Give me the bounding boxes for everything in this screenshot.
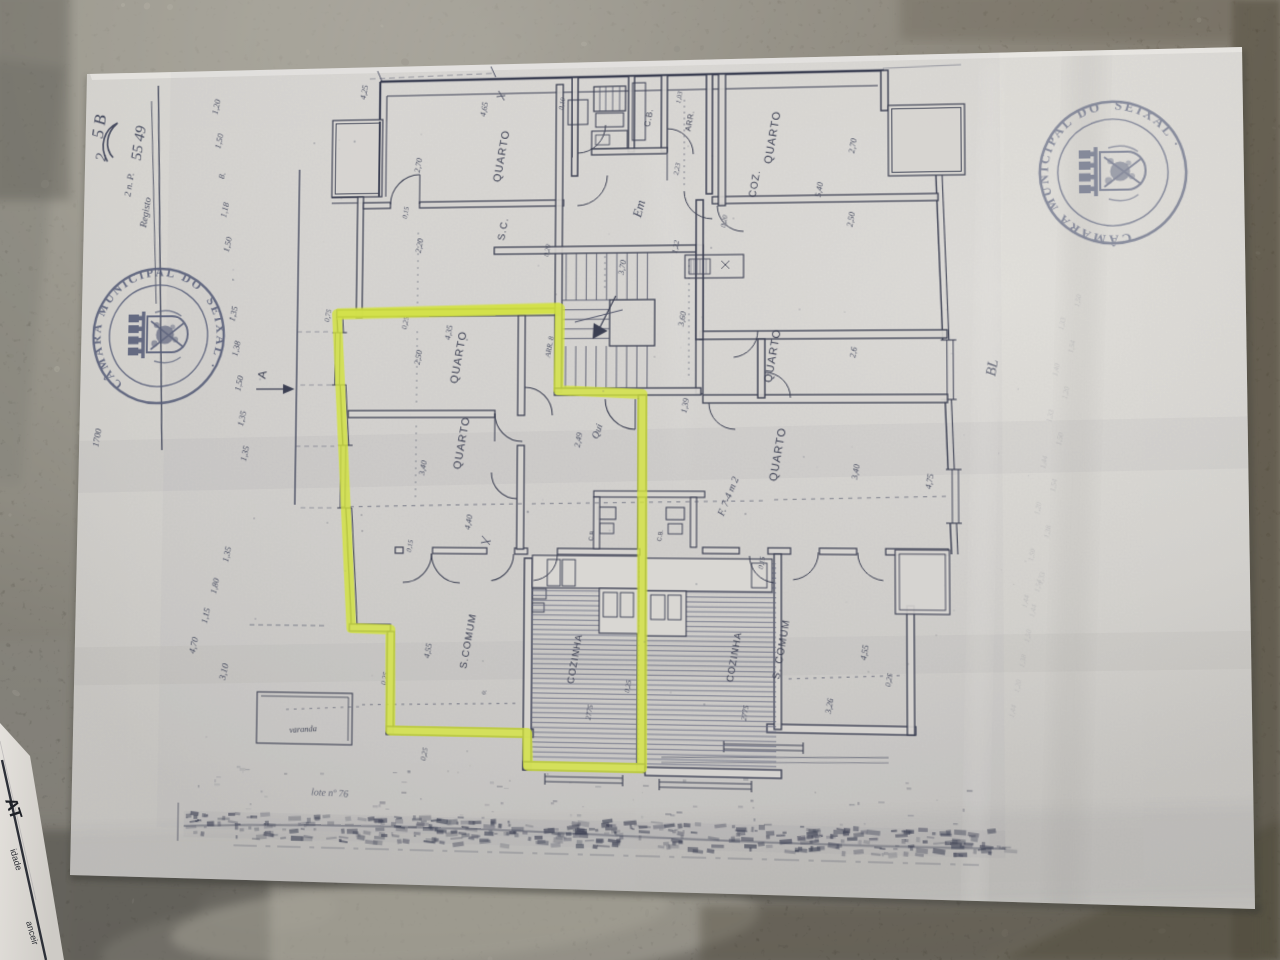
- svg-text:1,38: 1,38: [1043, 524, 1054, 539]
- svg-text:55 49: 55 49: [129, 124, 150, 161]
- svg-text:5 B: 5 B: [88, 114, 110, 140]
- svg-text:1,50: 1,50: [1023, 628, 1034, 643]
- svg-text:2 n. P.: 2 n. P.: [123, 172, 137, 197]
- svg-text:1,54: 1,54: [1067, 339, 1077, 354]
- svg-text:-: -: [1012, 386, 1023, 391]
- svg-text:varanda: varanda: [289, 724, 317, 735]
- svg-text:BL: BL: [982, 358, 1001, 377]
- svg-text:1,54: 1,54: [1034, 578, 1045, 593]
- svg-text:lote nº 76: lote nº 76: [311, 787, 349, 800]
- svg-text:1,44: 1,44: [1039, 454, 1050, 469]
- svg-text:,: ,: [1006, 582, 1016, 586]
- svg-text:1,44: 1,44: [1008, 703, 1019, 718]
- svg-text:Registo: Registo: [138, 197, 154, 230]
- svg-text:1,20: 1,20: [1013, 678, 1024, 693]
- svg-text:1,54: 1,54: [1049, 478, 1060, 493]
- svg-text:1,38: 1,38: [1018, 653, 1029, 668]
- svg-text:,: ,: [1017, 558, 1027, 562]
- svg-text:1700: 1700: [90, 427, 103, 448]
- svg-text:.: .: [1021, 473, 1031, 477]
- svg-text:1,33: 1,33: [1046, 408, 1056, 423]
- svg-text:1,40: 1,40: [1052, 362, 1062, 377]
- svg-text:1,44: 1,44: [1029, 603, 1040, 618]
- svg-text:1,50: 1,50: [1073, 293, 1083, 308]
- svg-text:1,50: 1,50: [1027, 547, 1038, 562]
- svg-text:2: 2: [93, 152, 110, 162]
- svg-text:2,6: 2,6: [848, 346, 860, 358]
- svg-text:1,20: 1,20: [1033, 501, 1044, 516]
- svg-text:1,20: 1,20: [1061, 385, 1071, 400]
- svg-text:1,33: 1,33: [1058, 316, 1068, 331]
- svg-text:1,50: 1,50: [1055, 431, 1066, 446]
